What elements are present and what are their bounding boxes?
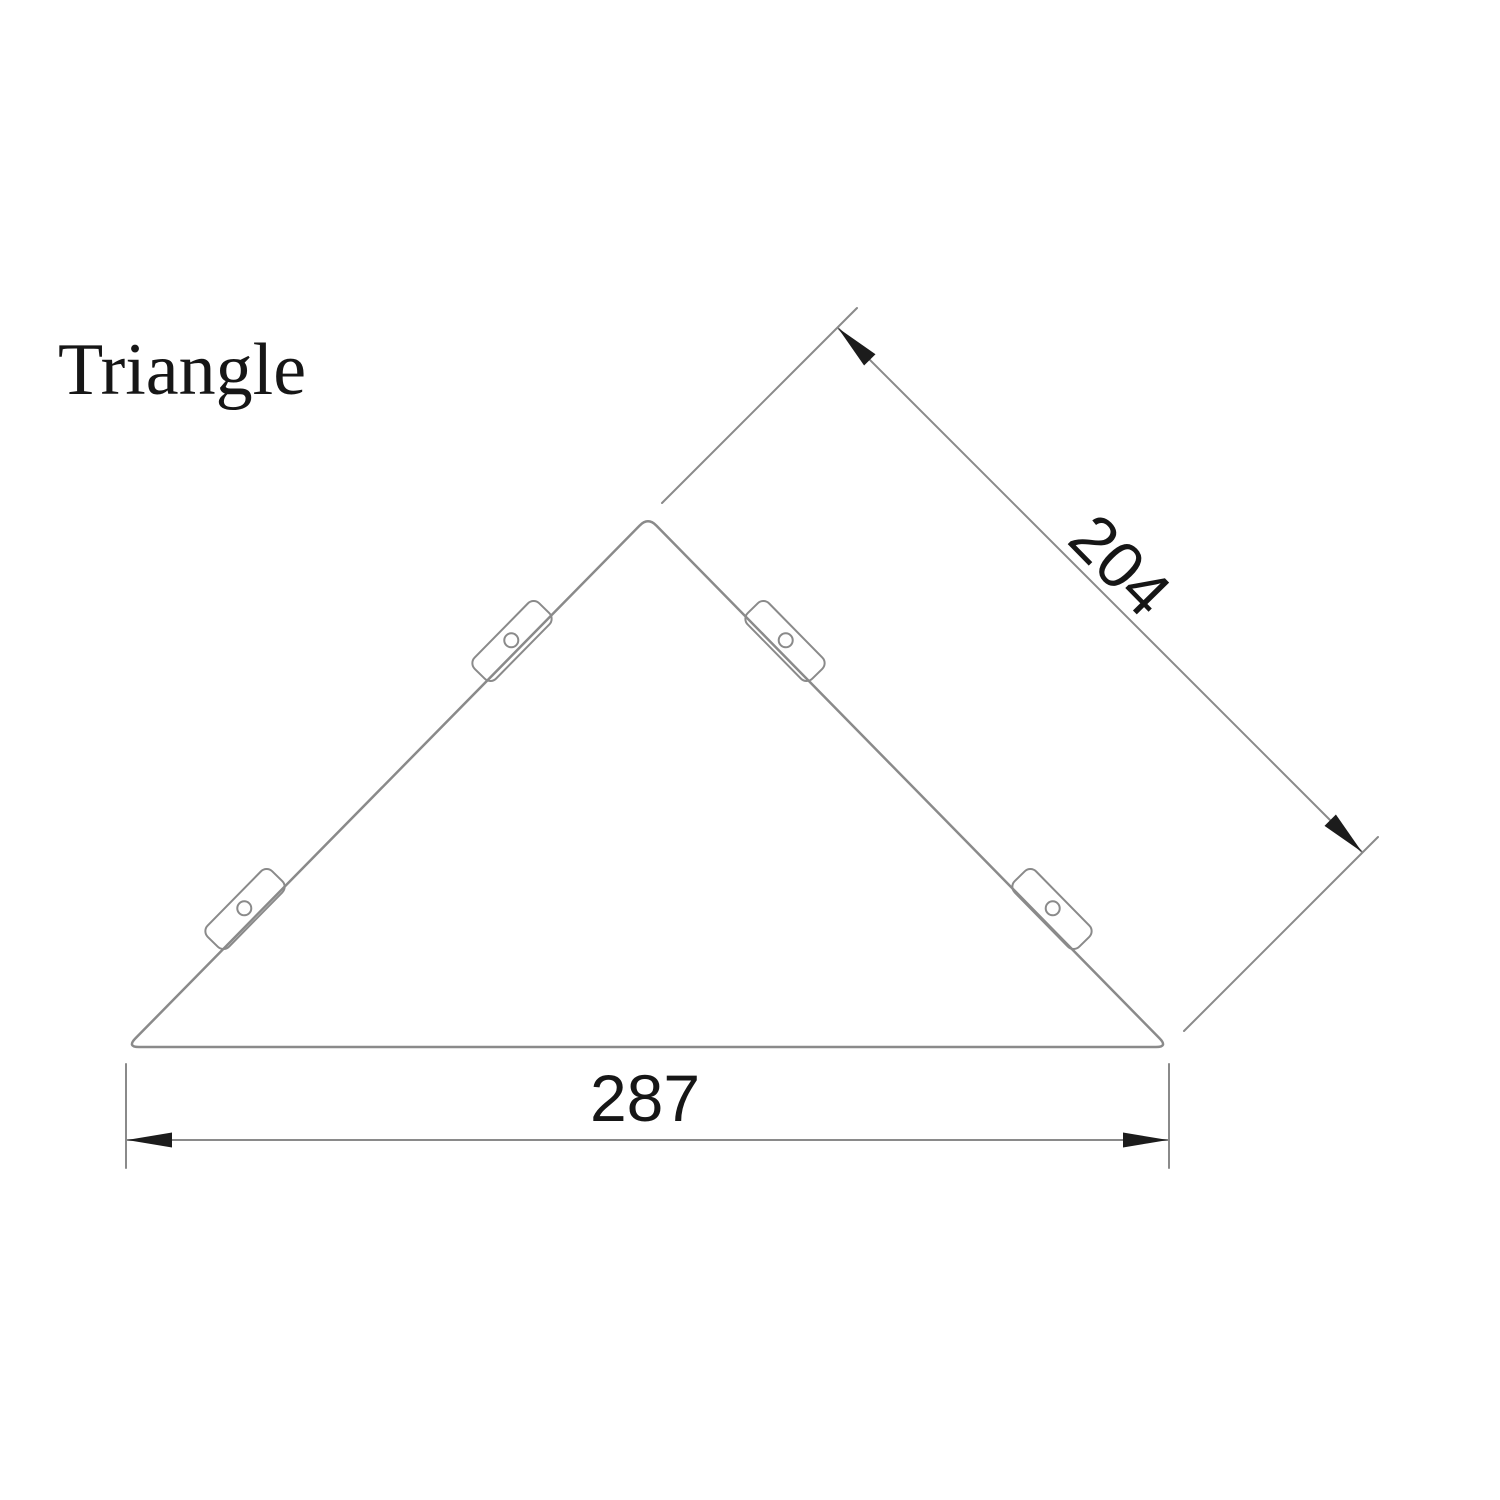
dimension-value-287: 287 [590, 1061, 700, 1135]
drawing-title: Triangle [58, 329, 306, 411]
drawing-canvas: Triangle 204 287 [0, 0, 1500, 1500]
technical-drawing: Triangle 204 287 [0, 0, 1500, 1500]
drawing-background [0, 0, 1500, 1500]
